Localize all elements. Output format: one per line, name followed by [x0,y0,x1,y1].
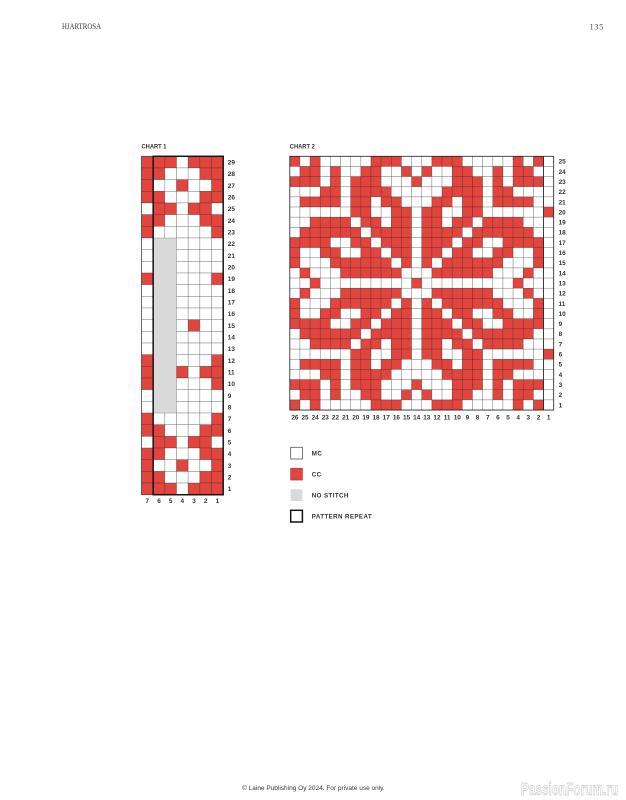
svg-text:7: 7 [559,341,563,348]
svg-text:5: 5 [228,440,232,447]
svg-text:2: 2 [537,415,541,422]
svg-text:1: 1 [559,402,563,409]
svg-text:CC: CC [312,472,322,479]
svg-text:16: 16 [559,250,567,257]
svg-text:5: 5 [169,498,173,505]
svg-text:3: 3 [192,498,196,505]
svg-text:12: 12 [559,291,567,298]
svg-text:6: 6 [157,498,161,505]
svg-text:10: 10 [228,381,236,388]
svg-text:24: 24 [228,218,236,225]
svg-text:26: 26 [228,194,236,201]
svg-text:12: 12 [433,415,441,422]
svg-text:6: 6 [496,415,500,422]
svg-text:10: 10 [559,311,567,318]
svg-text:26: 26 [291,415,299,422]
svg-text:8: 8 [228,405,232,412]
svg-text:21: 21 [559,199,567,206]
svg-text:© Laine Publishing Oy 2024. Fo: © Laine Publishing Oy 2024. For private … [242,784,385,792]
svg-text:23: 23 [228,229,236,236]
svg-text:13: 13 [559,280,567,287]
svg-text:29: 29 [228,159,236,166]
svg-text:22: 22 [332,415,340,422]
svg-text:14: 14 [228,334,236,341]
svg-text:18: 18 [228,288,236,295]
svg-text:PassionForum.ru: PassionForum.ru [521,779,618,799]
svg-text:7: 7 [146,498,150,505]
svg-text:7: 7 [228,416,232,423]
svg-text:21: 21 [228,253,236,260]
svg-text:25: 25 [559,159,567,166]
svg-text:8: 8 [476,415,480,422]
svg-text:11: 11 [228,370,235,377]
svg-text:2: 2 [228,475,232,482]
svg-text:1: 1 [228,486,232,493]
svg-text:25: 25 [301,415,309,422]
svg-text:20: 20 [559,209,567,216]
svg-text:10: 10 [454,415,462,422]
svg-text:6: 6 [559,352,563,359]
svg-text:7: 7 [486,415,490,422]
svg-text:5: 5 [559,362,563,369]
svg-text:3: 3 [559,382,563,389]
svg-text:17: 17 [228,299,236,306]
svg-text:2: 2 [204,498,208,505]
svg-text:18: 18 [373,415,381,422]
svg-text:4: 4 [181,498,185,505]
svg-text:1: 1 [547,415,551,422]
svg-text:24: 24 [312,415,320,422]
svg-text:22: 22 [559,189,567,196]
svg-text:3: 3 [228,463,232,470]
svg-text:CHART 1: CHART 1 [142,144,167,151]
svg-text:8: 8 [559,331,563,338]
svg-text:135: 135 [589,22,604,32]
svg-text:23: 23 [559,179,567,186]
svg-text:21: 21 [342,415,350,422]
svg-text:11: 11 [559,301,566,308]
svg-text:23: 23 [322,415,330,422]
svg-text:15: 15 [403,415,411,422]
svg-text:16: 16 [228,311,236,318]
svg-text:15: 15 [228,323,236,330]
svg-text:HJARTROSA: HJARTROSA [62,22,101,31]
svg-text:PATTERN REPEAT: PATTERN REPEAT [312,514,372,521]
svg-text:1: 1 [216,498,220,505]
svg-text:20: 20 [352,415,360,422]
svg-text:9: 9 [228,393,232,400]
svg-text:4: 4 [559,372,563,379]
svg-text:24: 24 [559,169,567,176]
svg-text:9: 9 [466,415,470,422]
svg-text:19: 19 [228,276,236,283]
svg-text:20: 20 [228,264,236,271]
svg-text:14: 14 [559,270,567,277]
svg-text:NO STITCH: NO STITCH [312,493,349,500]
svg-text:13: 13 [423,415,431,422]
svg-text:25: 25 [228,206,236,213]
svg-text:19: 19 [559,220,567,227]
svg-text:4: 4 [516,415,520,422]
svg-text:3: 3 [527,415,531,422]
svg-text:CHART 2: CHART 2 [290,144,315,151]
svg-text:17: 17 [383,415,391,422]
svg-text:5: 5 [506,415,510,422]
svg-text:2: 2 [559,392,563,399]
svg-text:4: 4 [228,451,232,458]
svg-text:16: 16 [393,415,401,422]
svg-text:28: 28 [228,171,236,178]
svg-text:9: 9 [559,321,563,328]
svg-text:15: 15 [559,260,567,267]
svg-text:6: 6 [228,428,232,435]
svg-text:22: 22 [228,241,236,248]
svg-text:MC: MC [312,451,323,458]
svg-text:27: 27 [228,183,236,190]
svg-text:13: 13 [228,346,236,353]
svg-text:12: 12 [228,358,236,365]
svg-text:19: 19 [362,415,370,422]
svg-text:18: 18 [559,230,567,237]
svg-text:14: 14 [413,415,421,422]
svg-text:11: 11 [444,415,451,422]
svg-text:17: 17 [559,240,567,247]
